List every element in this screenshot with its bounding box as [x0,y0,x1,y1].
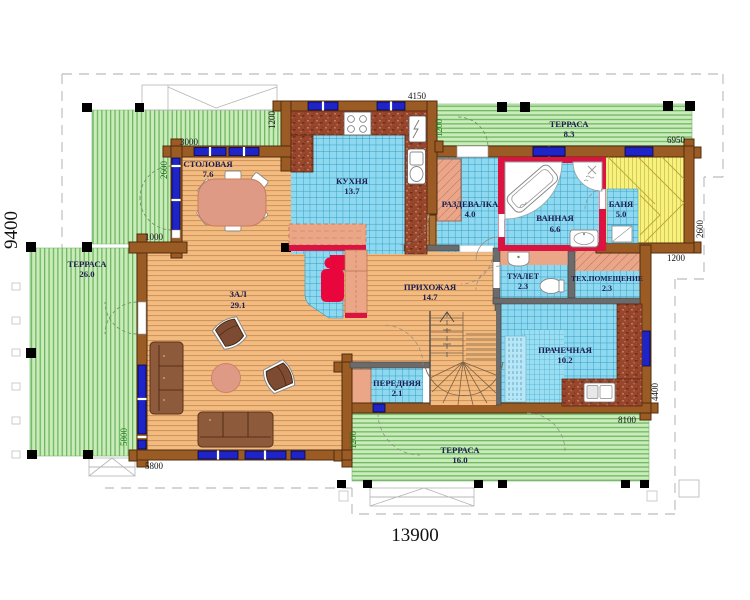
svg-text:2600: 2600 [695,220,705,239]
svg-text:3000: 3000 [180,137,199,147]
svg-text:7.6: 7.6 [203,169,215,179]
svg-text:6950: 6950 [667,135,686,145]
svg-text:РАЗДЕВАЛКА: РАЗДЕВАЛКА [442,199,499,209]
svg-text:4400: 4400 [650,383,660,402]
svg-text:ТУАЛЕТ: ТУАЛЕТ [507,272,540,281]
svg-text:2.3: 2.3 [518,282,528,291]
svg-text:8100: 8100 [618,415,637,425]
svg-text:29.1: 29.1 [230,300,245,310]
svg-text:6.6: 6.6 [550,224,562,234]
svg-text:9400: 9400 [1,211,22,249]
svg-text:ТЕРРАСА: ТЕРРАСА [549,119,589,129]
svg-text:2600: 2600 [159,161,169,180]
svg-text:2.1: 2.1 [392,388,403,398]
svg-text:ТЕРРАСА: ТЕРРАСА [440,445,480,455]
svg-text:ПРИХОЖАЯ: ПРИХОЖАЯ [404,282,457,292]
svg-text:5800: 5800 [145,461,164,471]
svg-text:КУХНЯ: КУХНЯ [336,176,369,186]
svg-text:ТЕХ.ПОМЕЩЕНИЕ: ТЕХ.ПОМЕЩЕНИЕ [571,274,643,283]
svg-text:26.0: 26.0 [79,269,95,279]
svg-text:ТЕРРАСА: ТЕРРАСА [67,259,107,269]
svg-text:4150: 4150 [408,91,427,101]
svg-text:13900: 13900 [391,525,439,546]
svg-text:БАНЯ: БАНЯ [609,199,633,209]
svg-text:16.0: 16.0 [452,455,468,465]
svg-text:1000: 1000 [145,232,164,242]
svg-text:1200: 1200 [267,111,277,130]
svg-text:2.3: 2.3 [602,284,612,293]
svg-text:ПРАЧЕЧНАЯ: ПРАЧЕЧНАЯ [538,345,592,355]
svg-text:ЗАЛ: ЗАЛ [229,289,247,299]
svg-text:СТОЛОВАЯ: СТОЛОВАЯ [183,159,233,169]
svg-text:13.7: 13.7 [344,186,360,196]
svg-text:1200: 1200 [348,431,358,450]
svg-text:1200: 1200 [434,119,444,138]
svg-text:8.3: 8.3 [564,129,576,139]
svg-text:1200: 1200 [667,253,686,263]
svg-text:4.0: 4.0 [465,209,477,219]
svg-text:14.7: 14.7 [422,292,438,302]
svg-text:10.2: 10.2 [557,355,572,365]
svg-text:5800: 5800 [119,428,129,447]
svg-text:5.0: 5.0 [616,209,627,219]
svg-text:ПЕРЕДНЯЯ: ПЕРЕДНЯЯ [373,378,421,388]
svg-text:ВАННАЯ: ВАННАЯ [536,213,574,223]
